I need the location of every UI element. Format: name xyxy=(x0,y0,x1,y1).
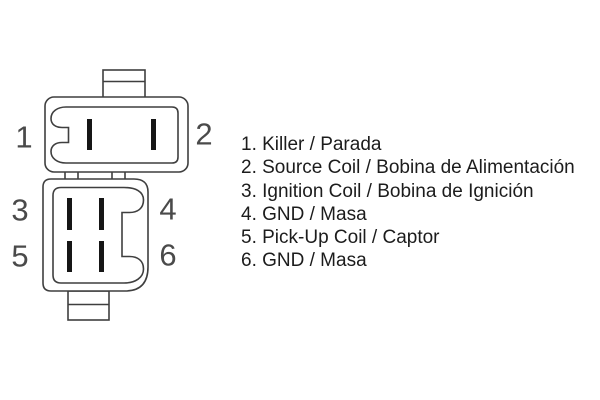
pin-4-blade xyxy=(99,198,104,230)
legend-item-6: 6. GND / Masa xyxy=(241,249,575,272)
pin-2-blade xyxy=(151,119,156,150)
pin-6-blade xyxy=(99,241,104,272)
legend-item-5: 5. Pick-Up Coil / Captor xyxy=(241,226,575,249)
legend-item-4: 4. GND / Masa xyxy=(241,203,575,226)
top-connector-tab xyxy=(103,70,145,100)
pin-3-blade xyxy=(67,198,72,230)
pin-label-5: 5 xyxy=(11,241,28,272)
pin-5-blade xyxy=(67,241,72,272)
bottom-connector-tab xyxy=(68,291,109,320)
top-connector-cavity xyxy=(51,107,178,163)
legend-item-3: 3. Ignition Coil / Bobina de Ignición xyxy=(241,180,575,203)
legend-item-1: 1. Killer / Parada xyxy=(241,133,575,156)
legend: 1. Killer / Parada 2. Source Coil / Bobi… xyxy=(241,133,575,273)
pin-label-4: 4 xyxy=(159,194,176,225)
connector-top xyxy=(45,70,188,181)
pin-label-3: 3 xyxy=(11,195,28,226)
pin-1-blade xyxy=(87,119,92,150)
pin-label-6: 6 xyxy=(159,240,176,271)
pinout-diagram-page: 1 2 3 4 5 6 1. Killer / Parada 2. Source… xyxy=(0,0,600,400)
connector-bottom xyxy=(43,179,148,320)
legend-item-2: 2. Source Coil / Bobina de Alimentación xyxy=(241,156,575,179)
pin-label-2: 2 xyxy=(195,119,212,150)
pin-label-1: 1 xyxy=(15,122,32,153)
